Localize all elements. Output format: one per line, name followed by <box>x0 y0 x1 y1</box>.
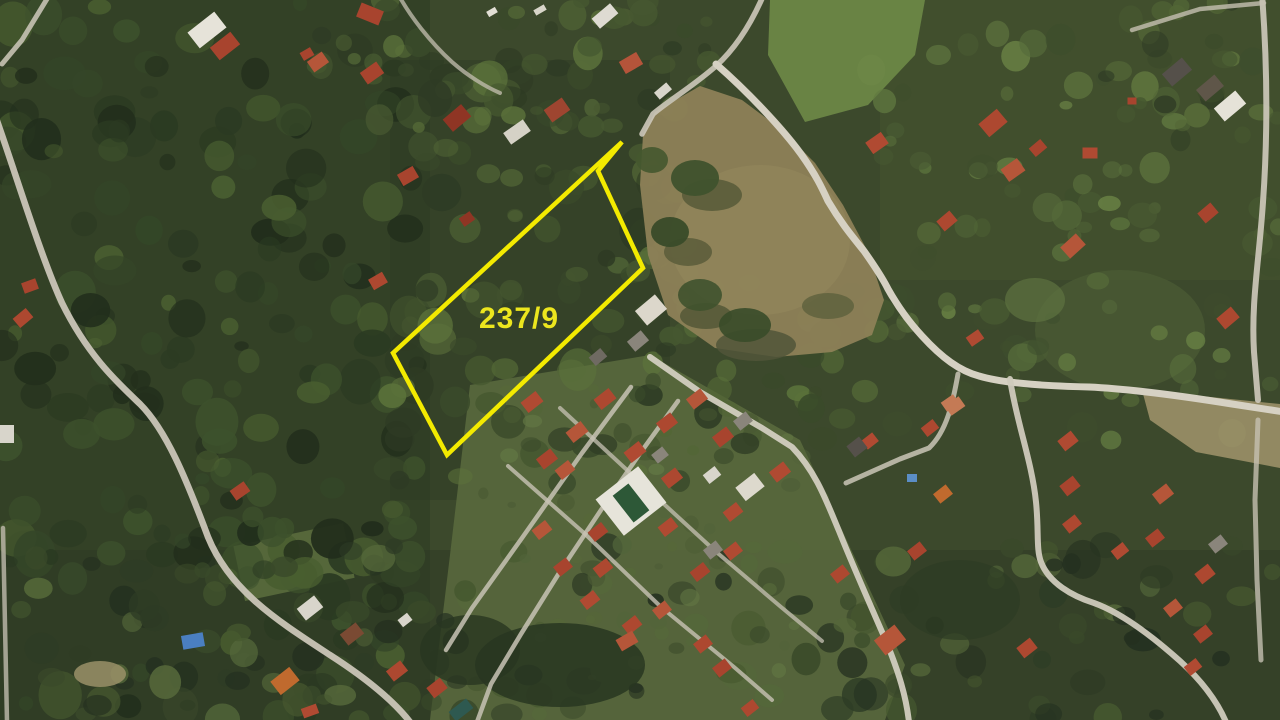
scene-layers <box>0 0 1280 720</box>
aerial-photo-stage: 237/9 <box>0 0 1280 720</box>
aerial-photo: 237/9 <box>0 0 1280 720</box>
parcel-label: 237/9 <box>479 302 559 335</box>
